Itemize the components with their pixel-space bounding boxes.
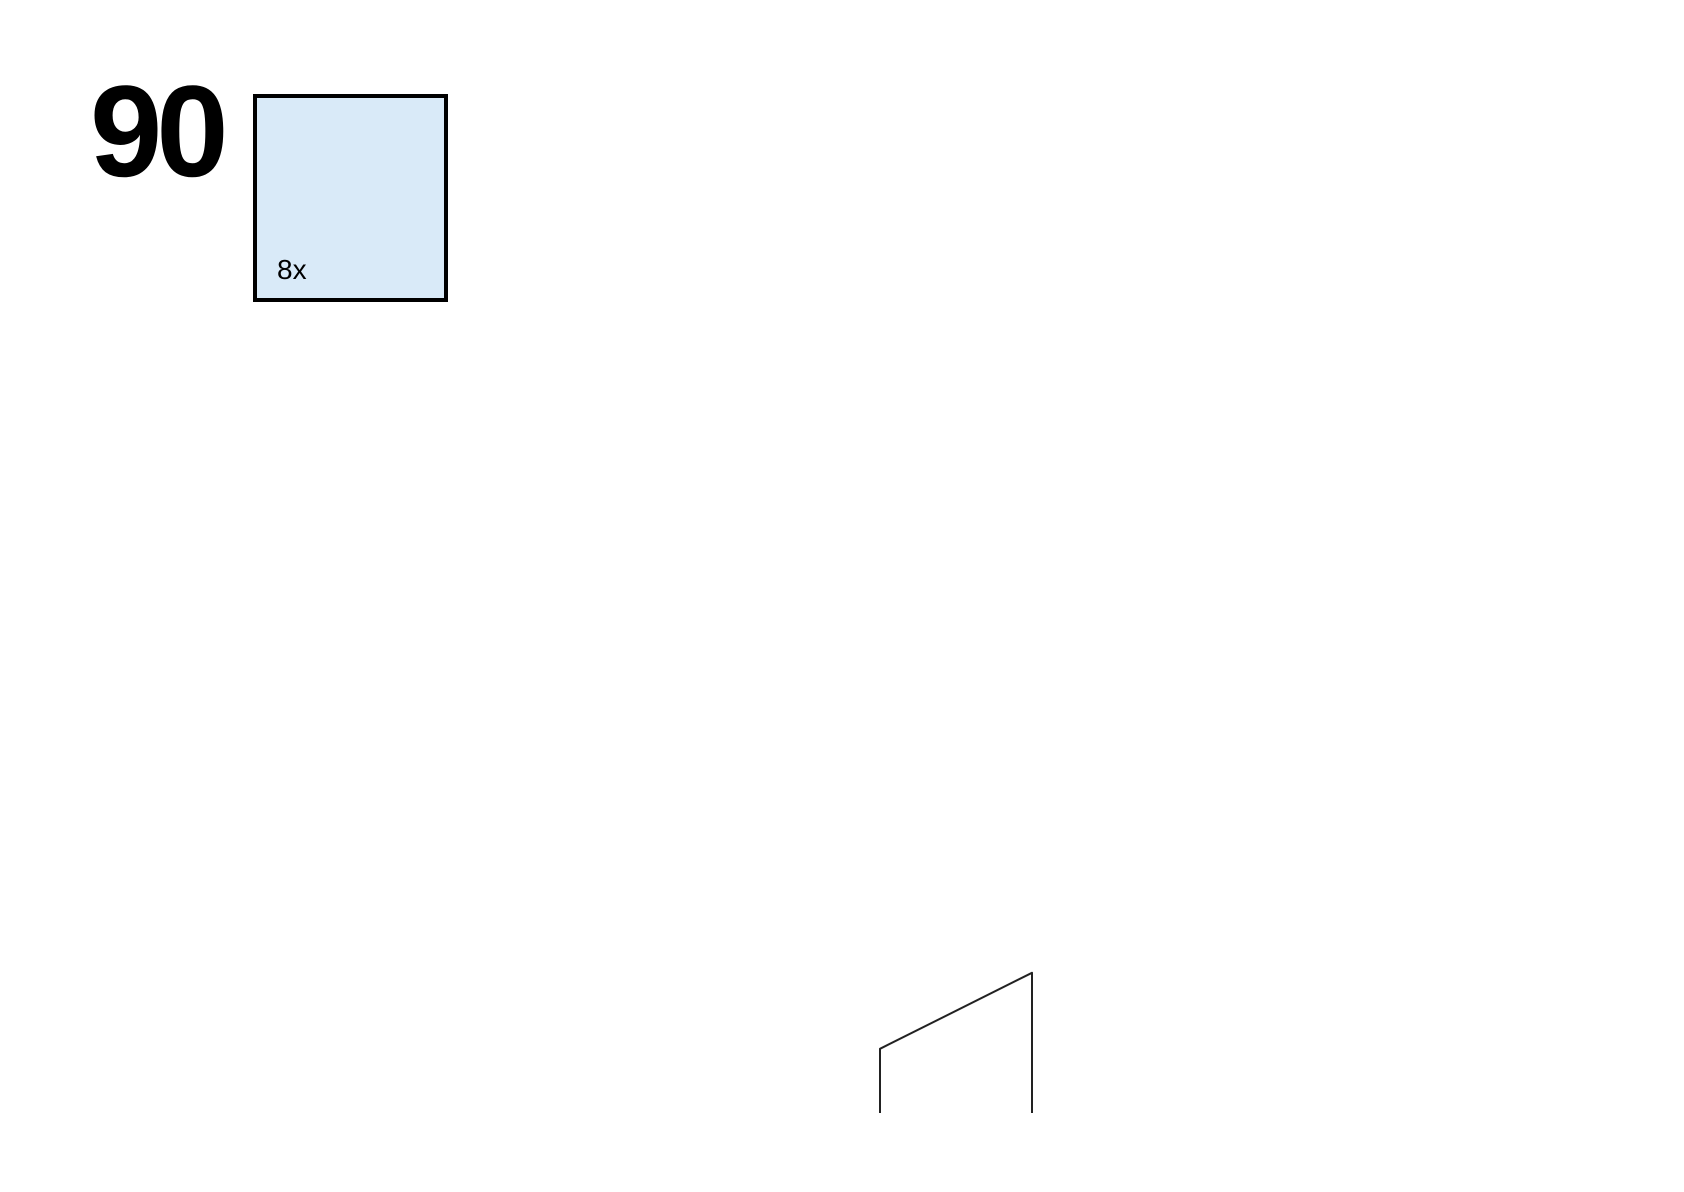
building-illustration (0, 0, 1684, 1192)
